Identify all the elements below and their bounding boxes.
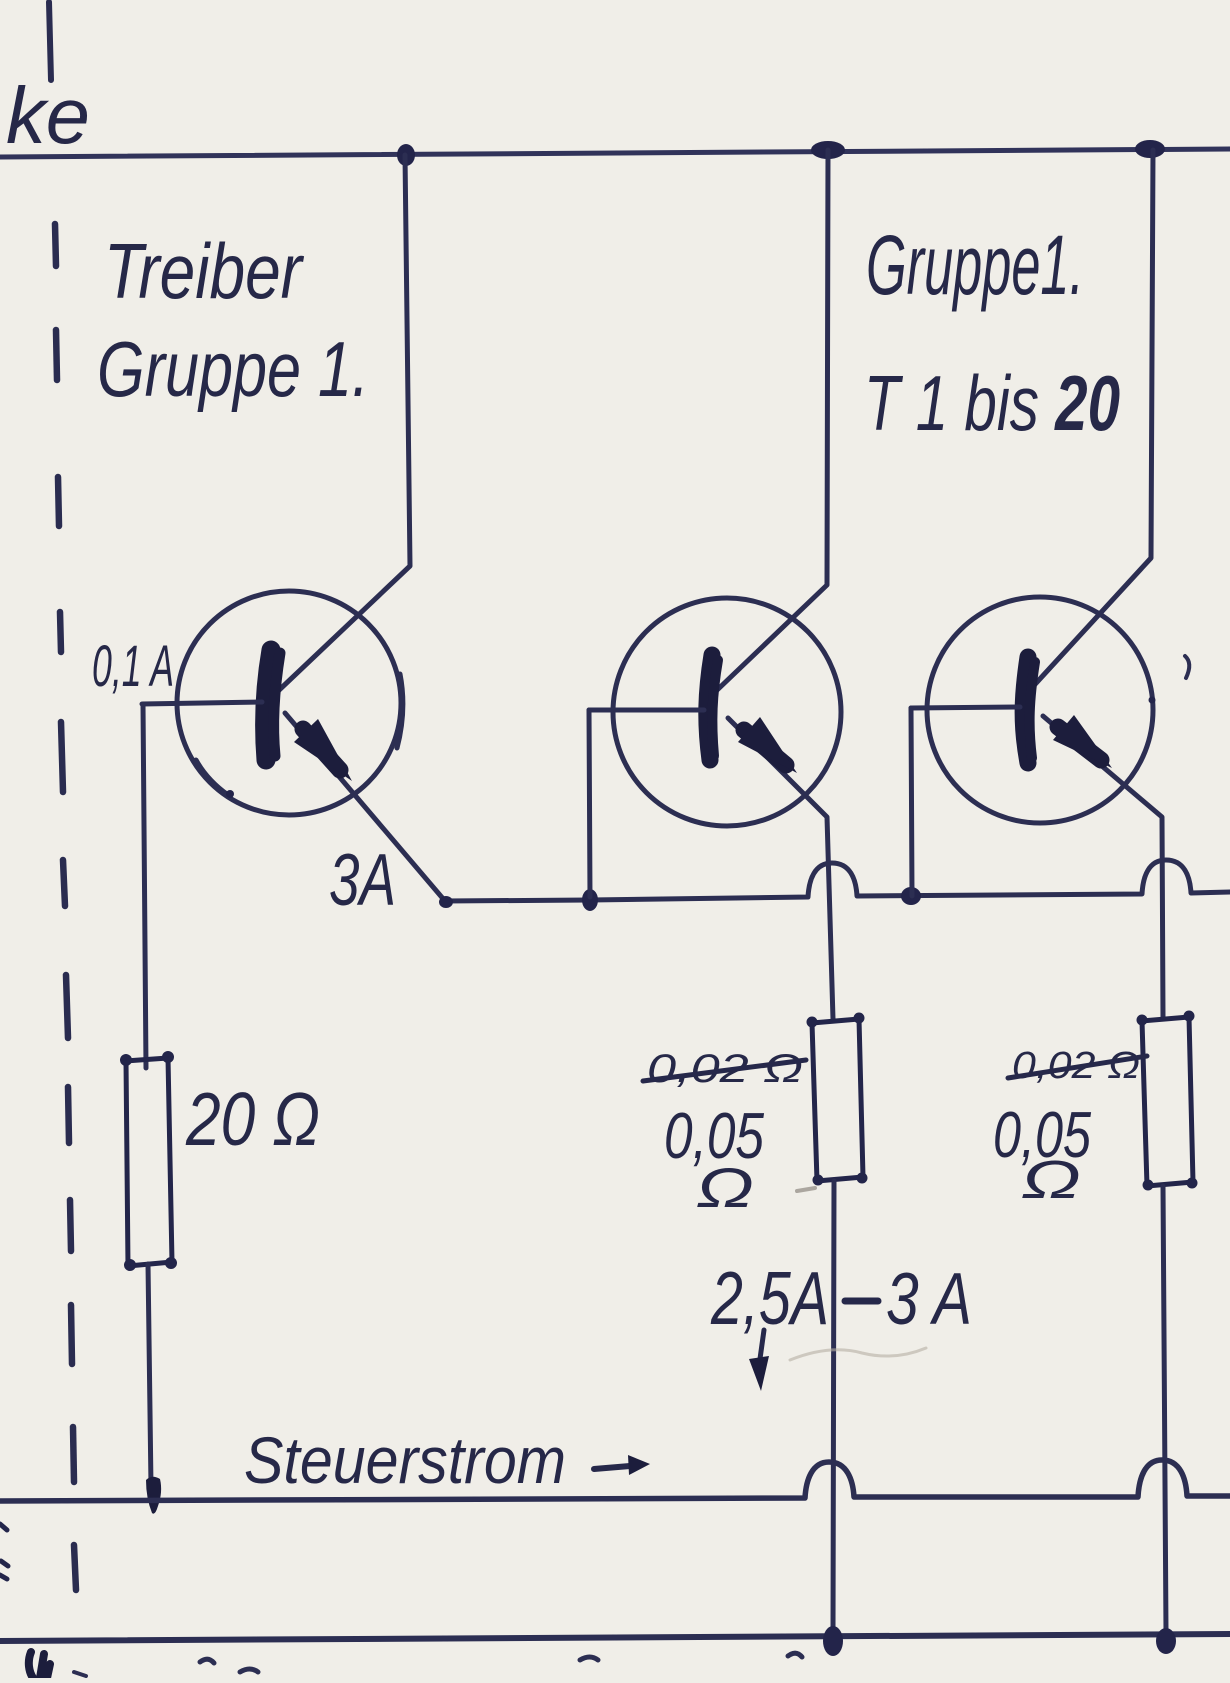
svg-text:3 A: 3 A <box>886 1259 972 1340</box>
svg-text:2,5A: 2,5A <box>710 1256 829 1340</box>
svg-text:Ω: Ω <box>1021 1150 1081 1210</box>
svg-text:ke: ke <box>6 71 90 160</box>
svg-text:Treiber: Treiber <box>104 227 304 315</box>
svg-text:0,1 A: 0,1 A <box>92 634 174 699</box>
svg-text:Steuerstrom: Steuerstrom <box>244 1423 566 1497</box>
svg-text:T 1 bis 20: T 1 bis 20 <box>864 359 1120 447</box>
svg-text:20 Ω: 20 Ω <box>185 1077 320 1161</box>
svg-text:Gruppe 1.: Gruppe 1. <box>97 325 369 413</box>
svg-text:3A: 3A <box>329 840 396 921</box>
svg-text:Ω: Ω <box>696 1156 754 1219</box>
svg-text:Gruppe1.: Gruppe1. <box>866 218 1084 312</box>
